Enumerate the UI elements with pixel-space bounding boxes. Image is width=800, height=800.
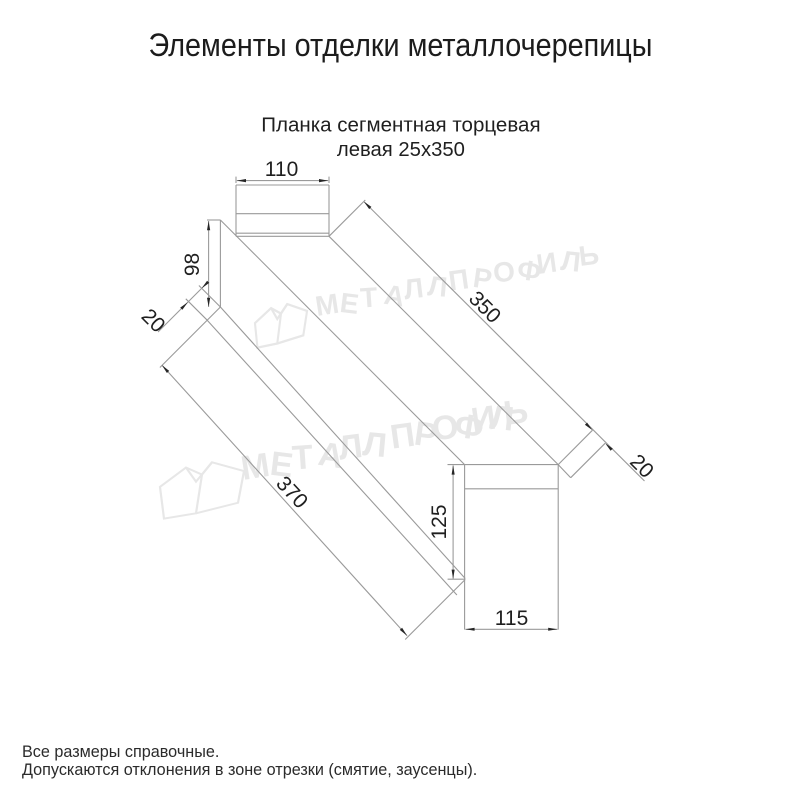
svg-text:115: 115: [495, 607, 528, 630]
svg-text:Л: Л: [402, 272, 425, 305]
svg-text:Ь: Ь: [577, 239, 601, 272]
svg-text:125: 125: [428, 504, 451, 539]
svg-text:98: 98: [181, 253, 204, 276]
svg-text:Л: Л: [361, 425, 388, 465]
svg-text:П: П: [447, 263, 471, 296]
svg-text:20: 20: [625, 450, 658, 483]
svg-text:Т: Т: [359, 281, 378, 313]
svg-text:110: 110: [265, 158, 298, 181]
svg-text:Т: Т: [291, 438, 315, 477]
svg-text:О: О: [492, 256, 516, 289]
svg-text:И: И: [535, 246, 559, 279]
svg-text:Л: Л: [336, 427, 364, 468]
svg-text:20: 20: [137, 305, 170, 338]
svg-text:Е: Е: [338, 287, 360, 320]
